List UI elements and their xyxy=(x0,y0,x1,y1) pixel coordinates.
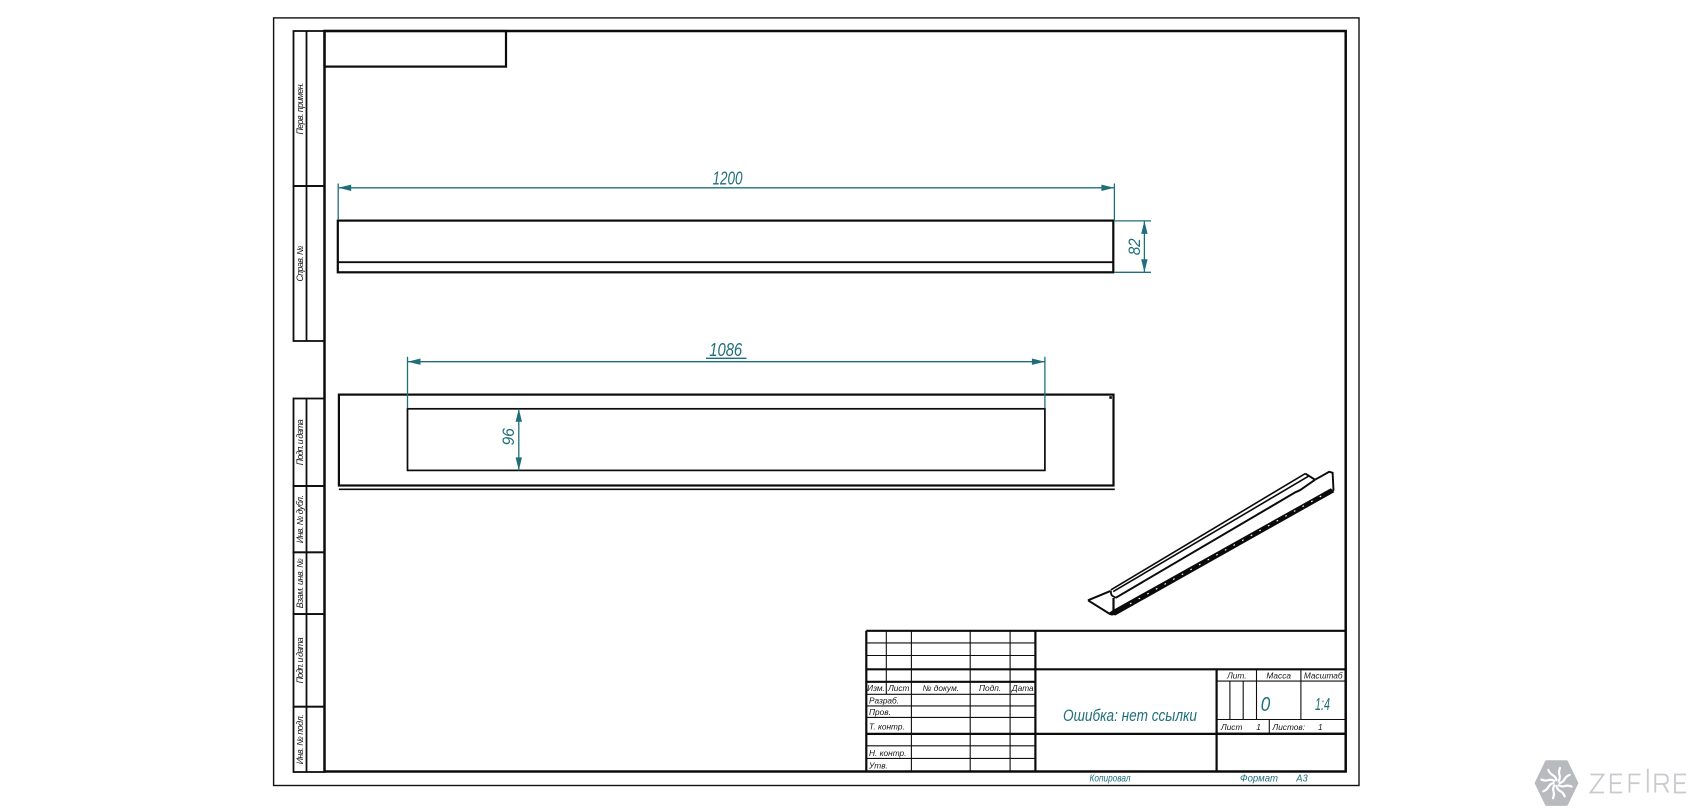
svg-text:Листов:: Листов: xyxy=(1272,722,1306,732)
svg-text:Лит.: Лит. xyxy=(1226,671,1246,681)
svg-text:Масштаб: Масштаб xyxy=(1304,671,1343,681)
svg-text:Перв. примен.: Перв. примен. xyxy=(295,83,305,135)
svg-text:Утв.: Утв. xyxy=(868,760,888,770)
svg-text:Дата: Дата xyxy=(1011,683,1034,693)
svg-text:Изм.: Изм. xyxy=(867,683,885,693)
svg-text:№ докум.: № докум. xyxy=(923,683,960,693)
svg-text:Подп.: Подп. xyxy=(979,683,1001,693)
svg-text:Подп. и дата: Подп. и дата xyxy=(295,637,305,683)
svg-text:1: 1 xyxy=(1256,722,1261,732)
svg-text:Копировал: Копировал xyxy=(1090,773,1131,784)
svg-text:96: 96 xyxy=(499,428,518,446)
svg-text:Пров.: Пров. xyxy=(869,707,891,717)
svg-text:Н. контр.: Н. контр. xyxy=(869,748,906,758)
svg-text:Т. контр.: Т. контр. xyxy=(869,722,905,732)
svg-text:Масса: Масса xyxy=(1266,671,1291,681)
svg-text:Инв. № дубл.: Инв. № дубл. xyxy=(295,495,305,543)
svg-text:Ошибка: нет ссылки: Ошибка: нет ссылки xyxy=(1063,706,1197,725)
svg-text:Лист: Лист xyxy=(887,683,909,693)
svg-text:Лист: Лист xyxy=(1220,722,1242,732)
svg-text:1:4: 1:4 xyxy=(1315,694,1330,714)
svg-text:0: 0 xyxy=(1261,694,1271,716)
svg-text:Взам. инв. №: Взам. инв. № xyxy=(295,558,305,608)
svg-text:1200: 1200 xyxy=(713,169,743,189)
svg-text:Разраб.: Разраб. xyxy=(869,695,899,705)
svg-text:82: 82 xyxy=(1125,238,1144,255)
svg-text:1: 1 xyxy=(1318,722,1323,732)
svg-text:1086: 1086 xyxy=(709,340,743,360)
svg-text:Инв. № подл.: Инв. № подл. xyxy=(295,714,305,764)
svg-text:Формат: Формат xyxy=(1240,773,1278,785)
svg-text:А3: А3 xyxy=(1295,773,1308,785)
svg-text:Подп. и дата: Подп. и дата xyxy=(295,419,305,465)
svg-text:Справ. №: Справ. № xyxy=(295,246,305,282)
